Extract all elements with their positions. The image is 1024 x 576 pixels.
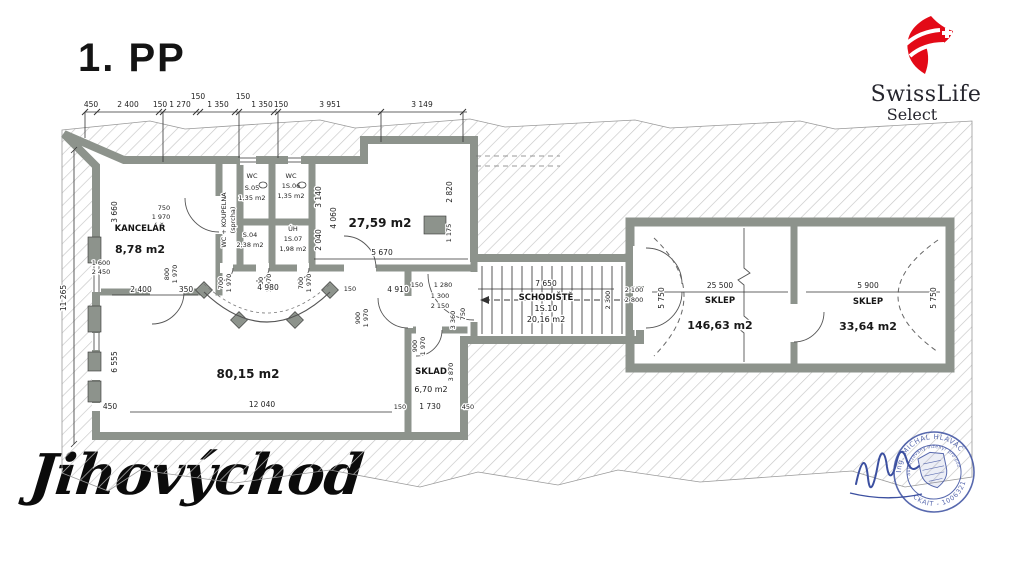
dim-label: 450 [103, 402, 118, 411]
dim-label: 150 [274, 100, 289, 109]
room-area: 33,64 m2 [839, 320, 897, 333]
room-area: 1,35 m2 [277, 192, 304, 200]
dim-label: 4 060 [329, 207, 338, 229]
room-code: 1S.06 [282, 182, 301, 190]
room-area: 80,15 m2 [217, 367, 280, 381]
dim-label: 1 970 [305, 274, 313, 293]
dim-label: 1 970 [362, 309, 370, 328]
dim-label: 2 100 [625, 286, 644, 294]
room-area: 6,70 m2 [414, 385, 447, 394]
dim-label: 150 [191, 92, 206, 101]
dim-label: 350 [179, 285, 194, 294]
dim-label: 3 951 [319, 100, 341, 109]
dim-label: 12 040 [249, 400, 275, 409]
dim-label: 1 970 [152, 213, 171, 221]
room-name: SKLEP [705, 296, 735, 306]
room-name: (sprcha) [229, 207, 237, 234]
dim-label: 11 265 [59, 285, 68, 311]
dim-label: 1 600 [92, 259, 111, 267]
dim-label: 2 150 [431, 302, 450, 310]
room-name: SCHODIŠTĚ [519, 291, 574, 303]
dim-label: 900 [411, 340, 419, 352]
dim-label: 700 [297, 277, 305, 289]
room-code: 1S.07 [284, 235, 303, 243]
dim-label: 150 [236, 92, 251, 101]
dim-label: 2 400 [117, 100, 139, 109]
dim-label: 1 350 [251, 100, 273, 109]
dim-label: 2 300 [604, 291, 612, 310]
dim-label: 2 820 [445, 181, 454, 203]
dim-label: 4 910 [387, 285, 409, 294]
dim-label: 1 730 [419, 402, 441, 411]
dim-label: 1 270 [169, 100, 191, 109]
dim-label: 750 [459, 308, 467, 320]
floor-plan-canvas: 450 2 400 150 1 270 150 1 350 150 1 350 … [0, 0, 1024, 576]
dim-label: 5 750 [657, 287, 666, 309]
room-area: 1,35 m2 [238, 194, 265, 202]
room-area: 1,98 m2 [279, 245, 306, 253]
room-code: S.05 [245, 184, 259, 192]
dim-label: 3 149 [411, 100, 433, 109]
room-code: 1S.10 [535, 304, 558, 313]
room-area: 146,63 m2 [687, 319, 752, 332]
dim-label: 2 400 [130, 285, 152, 294]
dim-label: 150 [153, 100, 168, 109]
dim-label: 2 040 [314, 229, 323, 251]
dim-label: 2 800 [625, 296, 644, 304]
room-area: 8,78 m2 [115, 243, 165, 256]
room-name: SKLAD [415, 367, 447, 377]
dim-label: 25 500 [707, 281, 733, 290]
dim-label: 1 970 [419, 337, 427, 356]
dim-label: 800 [163, 268, 171, 280]
floor-plan-page: 1. PP SwissLife Select Jihovýchod [0, 0, 1024, 576]
room-name: SKLEP [853, 297, 883, 307]
dim-label: 5 750 [929, 287, 938, 309]
dim-label: 1 300 [431, 292, 450, 300]
dim-label: 150 [394, 403, 406, 411]
dim-label: 3 870 [447, 363, 455, 382]
dim-label: 3 140 [314, 186, 323, 208]
dim-label: 150 [344, 285, 356, 293]
room-code: S.04 [243, 231, 257, 239]
dim-label: 450 [462, 403, 474, 411]
dim-label: 1 280 [434, 281, 453, 289]
dim-label: 750 [158, 204, 170, 212]
dim-label: 150 [411, 281, 423, 289]
dim-label: 700 [217, 277, 225, 289]
dim-label: 5 670 [371, 248, 393, 257]
room-name: ÚH [288, 224, 298, 233]
dim-label: 1 970 [171, 265, 179, 284]
dim-label: 1 970 [225, 274, 233, 293]
room-name: WC [247, 172, 258, 180]
room-name: KANCELÁŘ [115, 222, 166, 234]
dim-label: 3 360 [449, 311, 457, 330]
dim-label: 1 175 [445, 224, 453, 243]
dim-label: 2 450 [92, 268, 111, 276]
room-name: WC [286, 172, 297, 180]
dim-label: 4 980 [257, 283, 279, 292]
room-area: 2,38 m2 [236, 241, 263, 249]
room-area: 27,59 m2 [349, 216, 412, 230]
dim-label: 5 900 [857, 281, 879, 290]
dim-label: 900 [354, 312, 362, 324]
signature-underline [850, 493, 922, 498]
dim-label: 3 660 [110, 201, 119, 223]
dim-label: 450 [84, 100, 99, 109]
room-name: WC + KOUPELNA [220, 192, 228, 248]
dim-label: 7 650 [535, 279, 557, 288]
dim-label: 6 555 [110, 351, 119, 373]
dim-label: 1 350 [207, 100, 229, 109]
room-area: 20,16 m2 [527, 315, 565, 324]
